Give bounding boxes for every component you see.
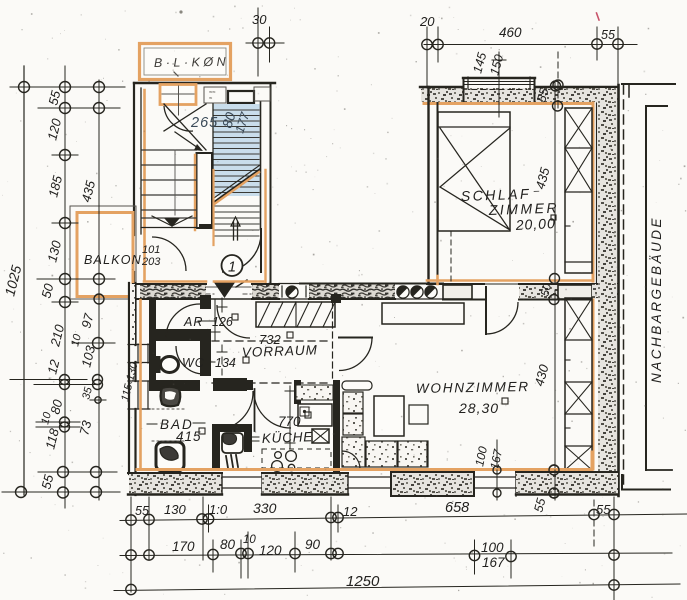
svg-text:28,30: 28,30 <box>458 400 499 416</box>
svg-text:B·L·KØN: B·L·KØN <box>154 55 229 70</box>
svg-text:100: 100 <box>481 540 504 555</box>
svg-text:55: 55 <box>596 502 611 517</box>
svg-text:BALKON: BALKON <box>84 253 142 267</box>
svg-text:1: 1 <box>228 260 236 276</box>
svg-text:30: 30 <box>252 12 267 27</box>
svg-text:134: 134 <box>215 356 236 370</box>
svg-text:120: 120 <box>259 543 282 558</box>
svg-text:265: 265 <box>190 115 218 131</box>
svg-text:170: 170 <box>172 539 195 554</box>
svg-text:55: 55 <box>135 504 149 518</box>
svg-text:90: 90 <box>305 537 321 552</box>
svg-text:VORRAUM: VORRAUM <box>242 342 318 360</box>
svg-text:WC: WC <box>182 356 205 370</box>
svg-text:WOHNZIMMER: WOHNZIMMER <box>416 379 530 396</box>
svg-text:460: 460 <box>499 25 522 40</box>
svg-text:658: 658 <box>445 500 469 516</box>
svg-text:101: 101 <box>142 244 160 256</box>
svg-text:NACHBARGEBÄUDE: NACHBARGEBÄUDE <box>649 216 664 383</box>
svg-text:1250: 1250 <box>346 573 380 590</box>
svg-text:1:0: 1:0 <box>209 502 228 517</box>
svg-text:203: 203 <box>141 256 161 268</box>
svg-text:12: 12 <box>343 504 358 519</box>
svg-text:55: 55 <box>601 28 615 42</box>
svg-text:167: 167 <box>482 555 505 570</box>
svg-text:20: 20 <box>419 14 435 29</box>
svg-text:130: 130 <box>164 502 186 517</box>
svg-text:AR: AR <box>183 315 203 329</box>
svg-text:20,00: 20,00 <box>514 215 556 233</box>
svg-text:10: 10 <box>243 534 256 546</box>
svg-text:80: 80 <box>220 537 236 552</box>
svg-text:330: 330 <box>253 500 277 516</box>
